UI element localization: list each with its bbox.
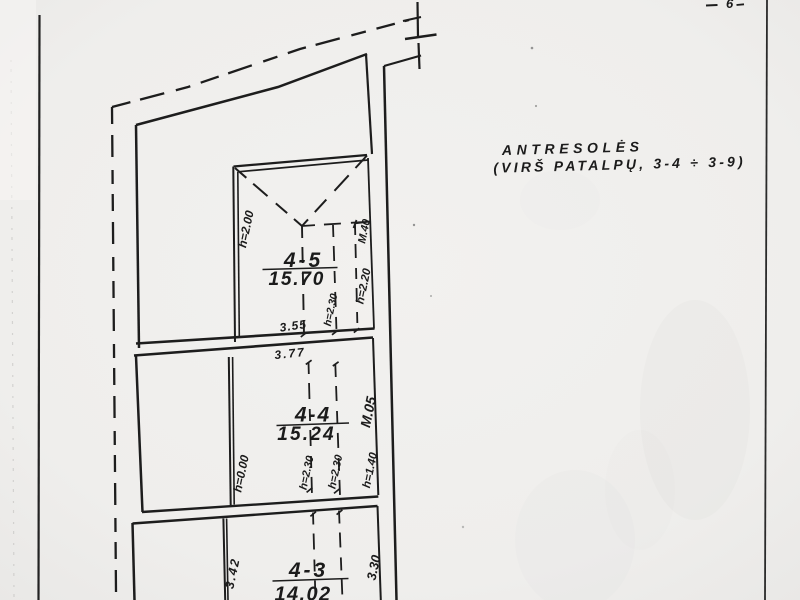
- svg-text:14.02: 14.02: [274, 584, 331, 600]
- svg-text:4-3: 4-3: [288, 559, 328, 582]
- svg-text:15.70: 15.70: [269, 269, 326, 290]
- svg-text:6: 6: [726, 0, 734, 11]
- svg-text:15.24: 15.24: [277, 424, 336, 445]
